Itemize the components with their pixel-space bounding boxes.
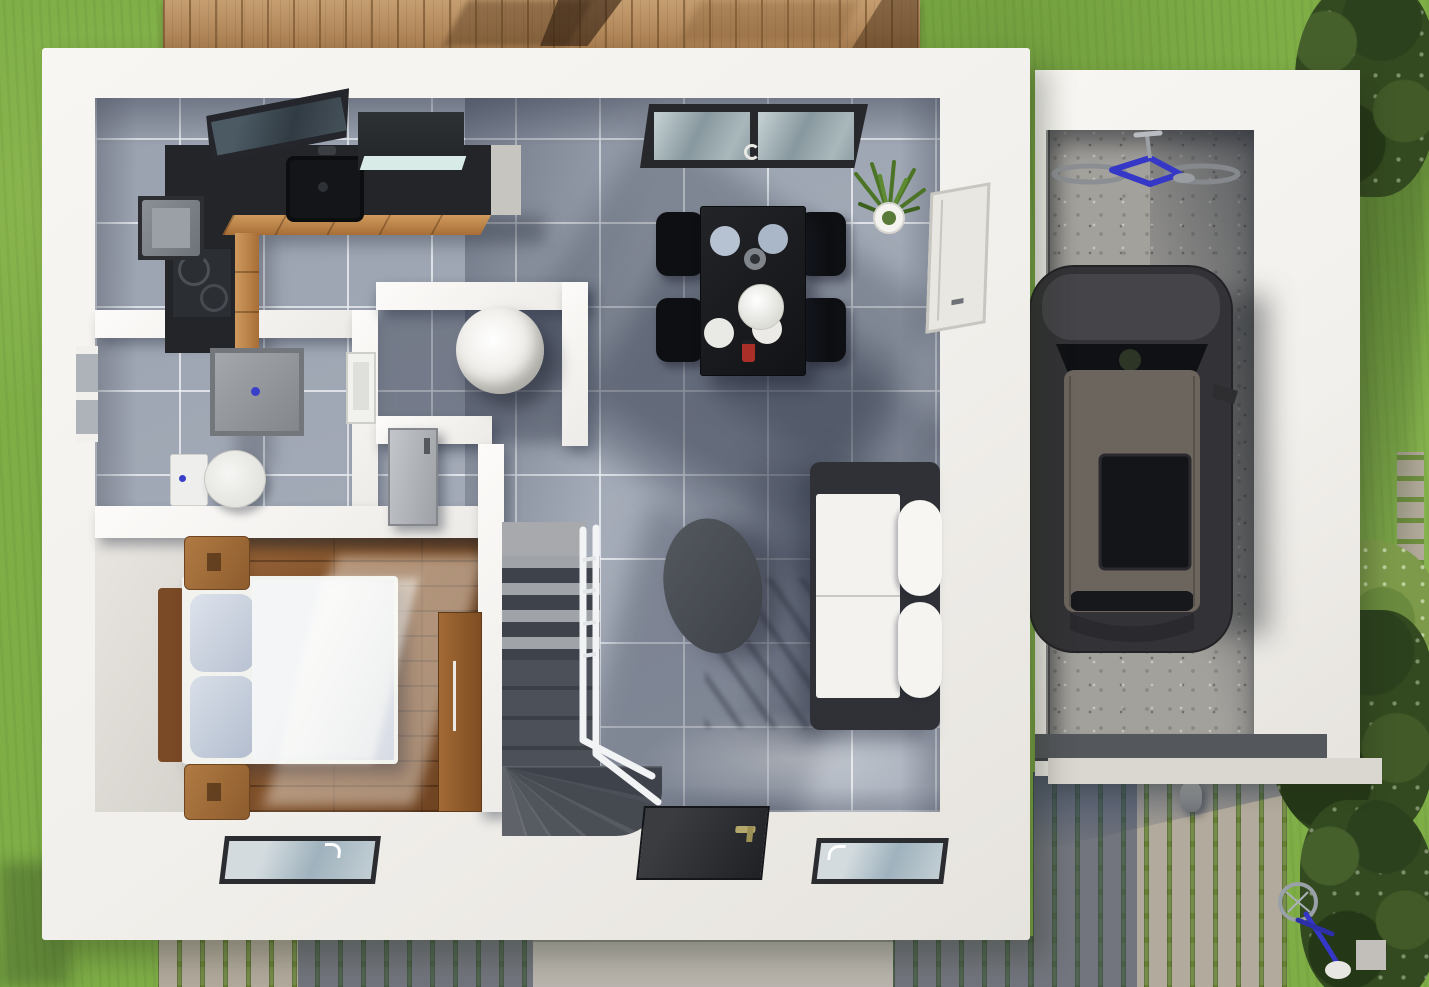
bed-headboard bbox=[158, 588, 184, 762]
bicycle-garage bbox=[1050, 126, 1250, 200]
sofa-back-cushion bbox=[898, 602, 942, 698]
living-facade-window bbox=[811, 838, 949, 884]
counter-end-panel bbox=[491, 145, 521, 215]
deck-shadow bbox=[681, 0, 860, 40]
sofa-back-cushion bbox=[898, 500, 942, 596]
bicycle-garden bbox=[1278, 868, 1370, 987]
floor-plan-scene bbox=[0, 0, 1429, 987]
plate bbox=[710, 226, 740, 256]
serving-bowl bbox=[738, 284, 784, 330]
stone-bollard bbox=[1180, 782, 1202, 812]
open-door bbox=[388, 428, 438, 526]
condiment-red bbox=[742, 340, 755, 362]
roof-window-dining bbox=[640, 104, 868, 168]
shower-tray bbox=[210, 348, 304, 436]
garage-sill bbox=[1048, 758, 1382, 784]
window-handle bbox=[951, 298, 963, 305]
refrigerator-face bbox=[152, 208, 190, 248]
bathroom-window bbox=[76, 346, 98, 442]
nightstand bbox=[184, 536, 250, 590]
kitchen-sink bbox=[286, 156, 364, 222]
pillow bbox=[190, 594, 254, 672]
sink-drain bbox=[318, 182, 328, 192]
stair-railing bbox=[500, 518, 664, 838]
cabinet-front-leg bbox=[235, 233, 259, 353]
wall-wc-right bbox=[562, 282, 588, 446]
range-hood-glass bbox=[360, 156, 467, 170]
dining-chair bbox=[656, 212, 704, 276]
window-handle bbox=[744, 144, 760, 160]
dining-chair bbox=[656, 298, 704, 362]
wall-wc-top bbox=[376, 282, 588, 310]
cooktop-burner bbox=[200, 284, 228, 312]
refrigerator bbox=[142, 200, 200, 256]
garage-door bbox=[1035, 734, 1327, 761]
nightstand bbox=[184, 764, 250, 820]
plate bbox=[758, 224, 788, 254]
sink-faucet bbox=[318, 146, 336, 155]
staircase bbox=[500, 518, 664, 838]
door-handle bbox=[424, 438, 430, 454]
side-wall-window bbox=[926, 182, 991, 334]
vase bbox=[744, 248, 766, 270]
toilet-tank bbox=[170, 454, 208, 506]
round-table bbox=[456, 306, 544, 394]
wardrobe bbox=[438, 612, 482, 812]
flush-button bbox=[179, 475, 186, 482]
concrete-entry-pad bbox=[533, 940, 893, 987]
pillow bbox=[190, 676, 254, 758]
plate bbox=[704, 318, 734, 348]
wardrobe-handle bbox=[453, 661, 456, 731]
potted-plant bbox=[850, 160, 930, 250]
bathroom-sink bbox=[346, 352, 376, 424]
toilet-bowl bbox=[204, 450, 266, 508]
front-door bbox=[636, 806, 770, 880]
bedroom-facade-window bbox=[219, 836, 381, 884]
car bbox=[1026, 258, 1240, 658]
path-shadow bbox=[298, 936, 544, 987]
shower-drain bbox=[251, 387, 260, 396]
sofa bbox=[810, 462, 940, 730]
